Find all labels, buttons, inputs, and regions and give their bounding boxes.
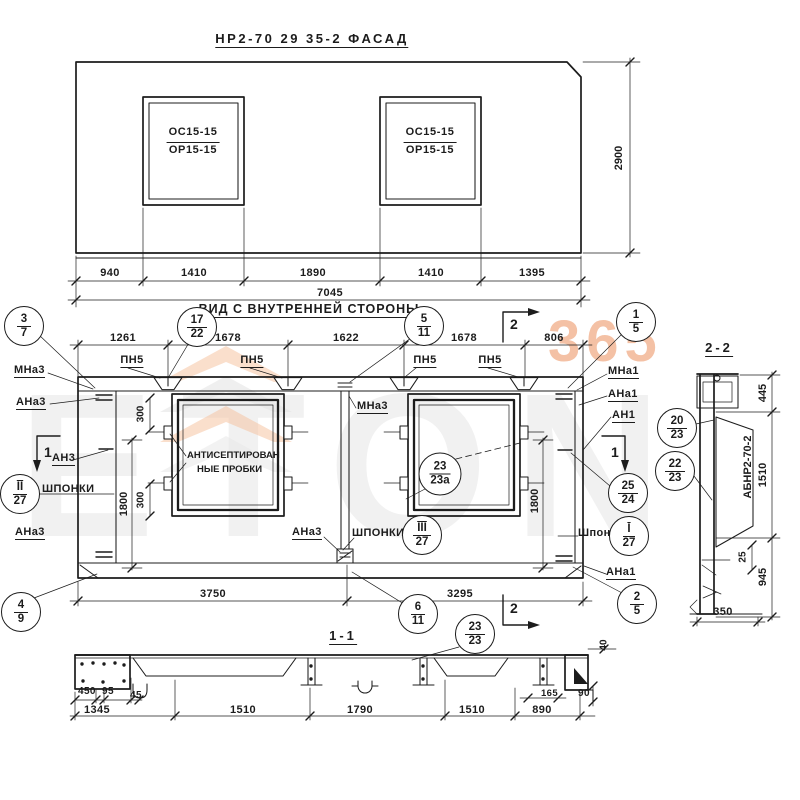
dim-3750: 3750 [200,588,226,600]
dim-1410: 1410 [181,267,207,279]
callout-22-23: 2223 [655,451,695,491]
label-pn5: ПН5 [120,354,143,368]
dim-450: 450 [78,686,96,697]
label-shponki-center: ШПОНКИ [352,527,404,539]
callout-1-5: 15 [616,302,656,342]
dim-445: 445 [757,384,769,402]
label-abnr-panel: АБНР2-70-2 [742,436,754,499]
dim-40: 40 [599,639,610,650]
dim-1410: 1410 [418,267,444,279]
callout-4-9: 49 [1,592,41,632]
dim-7045: 7045 [317,287,343,299]
dim-1800: 1800 [118,492,130,516]
dim-1395: 1395 [519,267,545,279]
blueprint-page: ETON 365 [0,0,800,800]
dim-1790: 1790 [347,704,373,716]
label-an1: АН1 [612,409,635,423]
label-shponki-left: ШПОНКИ [42,483,94,495]
dim-1800: 1800 [529,489,541,513]
window-mark-bottom: ОР15-15 [404,143,457,159]
label-ana3: АНа3 [15,526,45,540]
window-mark-bottom: ОР15-15 [167,143,220,159]
label-plugs-line1: АНТИСЕПТИРОВАН [187,450,280,461]
dim-1678: 1678 [215,332,241,344]
dim-300: 300 [136,492,147,509]
callout-6-11: 611 [398,594,438,634]
callout-II-27: II27 [0,474,40,514]
dim-1345: 1345 [84,704,110,716]
dim-3295: 3295 [447,588,473,600]
label-mna3: МНа3 [14,364,45,378]
dim-25: 25 [738,551,749,562]
window-mark-top: ОС15-15 [167,125,220,143]
facade-linework [68,58,640,307]
section-2-2-linework [690,371,780,626]
dim-90: 90 [578,688,590,699]
label-ana3-center: АНа3 [292,526,322,540]
dim-300: 300 [136,406,147,423]
label-pn5: ПН5 [240,354,263,368]
label-ana3: АНа3 [16,396,46,410]
window-mark-top: ОС15-15 [404,125,457,143]
callout-2-5: 25 [617,584,657,624]
section-2-2-title: 2-2 [705,340,733,357]
dim-45: 45 [130,690,142,701]
label-ana1: АНа1 [608,388,638,402]
dim-1510: 1510 [757,463,769,487]
dim-806: 806 [544,332,564,344]
label-mna1: МНа1 [608,365,639,379]
callout-25-24: 2524 [608,473,648,513]
section-1-1-title: 1-1 [329,628,357,645]
dim-940: 940 [100,267,120,279]
label-an3: АН3 [52,452,75,466]
dim-1678: 1678 [451,332,477,344]
label-mna3-center: МНа3 [357,400,388,414]
dim-1622: 1622 [333,332,359,344]
cut-mark-1: 1 [611,444,619,460]
dim-2900: 2900 [613,146,625,170]
drawing-linework [0,0,800,800]
cut-mark-1: 1 [44,444,52,460]
callout-5-11: 511 [404,306,444,346]
callout-3-7: 37 [4,306,44,346]
window-mark-1: ОС15-15 ОР15-15 [167,125,220,159]
facade-title: НР2-70 29 35-2 ФАСАД [215,31,408,48]
dim-890: 890 [532,704,552,716]
dim-1510: 1510 [230,704,256,716]
dim-165: 165 [541,688,558,699]
callout-17-22: 1722 [177,307,217,347]
callout-20-23: 2023 [657,408,697,448]
callout-III-27: III27 [402,515,442,555]
dim-1261: 1261 [110,332,136,344]
label-pn5: ПН5 [478,354,501,368]
cut-mark-2: 2 [510,600,518,616]
window-mark-2: ОС15-15 ОР15-15 [404,125,457,159]
dim-95: 95 [102,686,114,697]
dim-1510: 1510 [459,704,485,716]
inner-view-title: ВИД С ВНУТРЕННЕЙ СТОРОНЫ [199,302,420,318]
label-pn5: ПН5 [413,354,436,368]
label-ana1: АНа1 [606,566,636,580]
dim-350: 350 [713,606,733,618]
callout-23-23: 2323 [455,614,495,654]
cut-mark-2: 2 [510,316,518,332]
callout-I-27: I27 [609,516,649,556]
label-plugs-line2: НЫЕ ПРОБКИ [197,464,262,475]
dim-1890: 1890 [300,267,326,279]
callout-23-23a: 2323а [419,453,462,496]
dim-945: 945 [757,568,769,586]
